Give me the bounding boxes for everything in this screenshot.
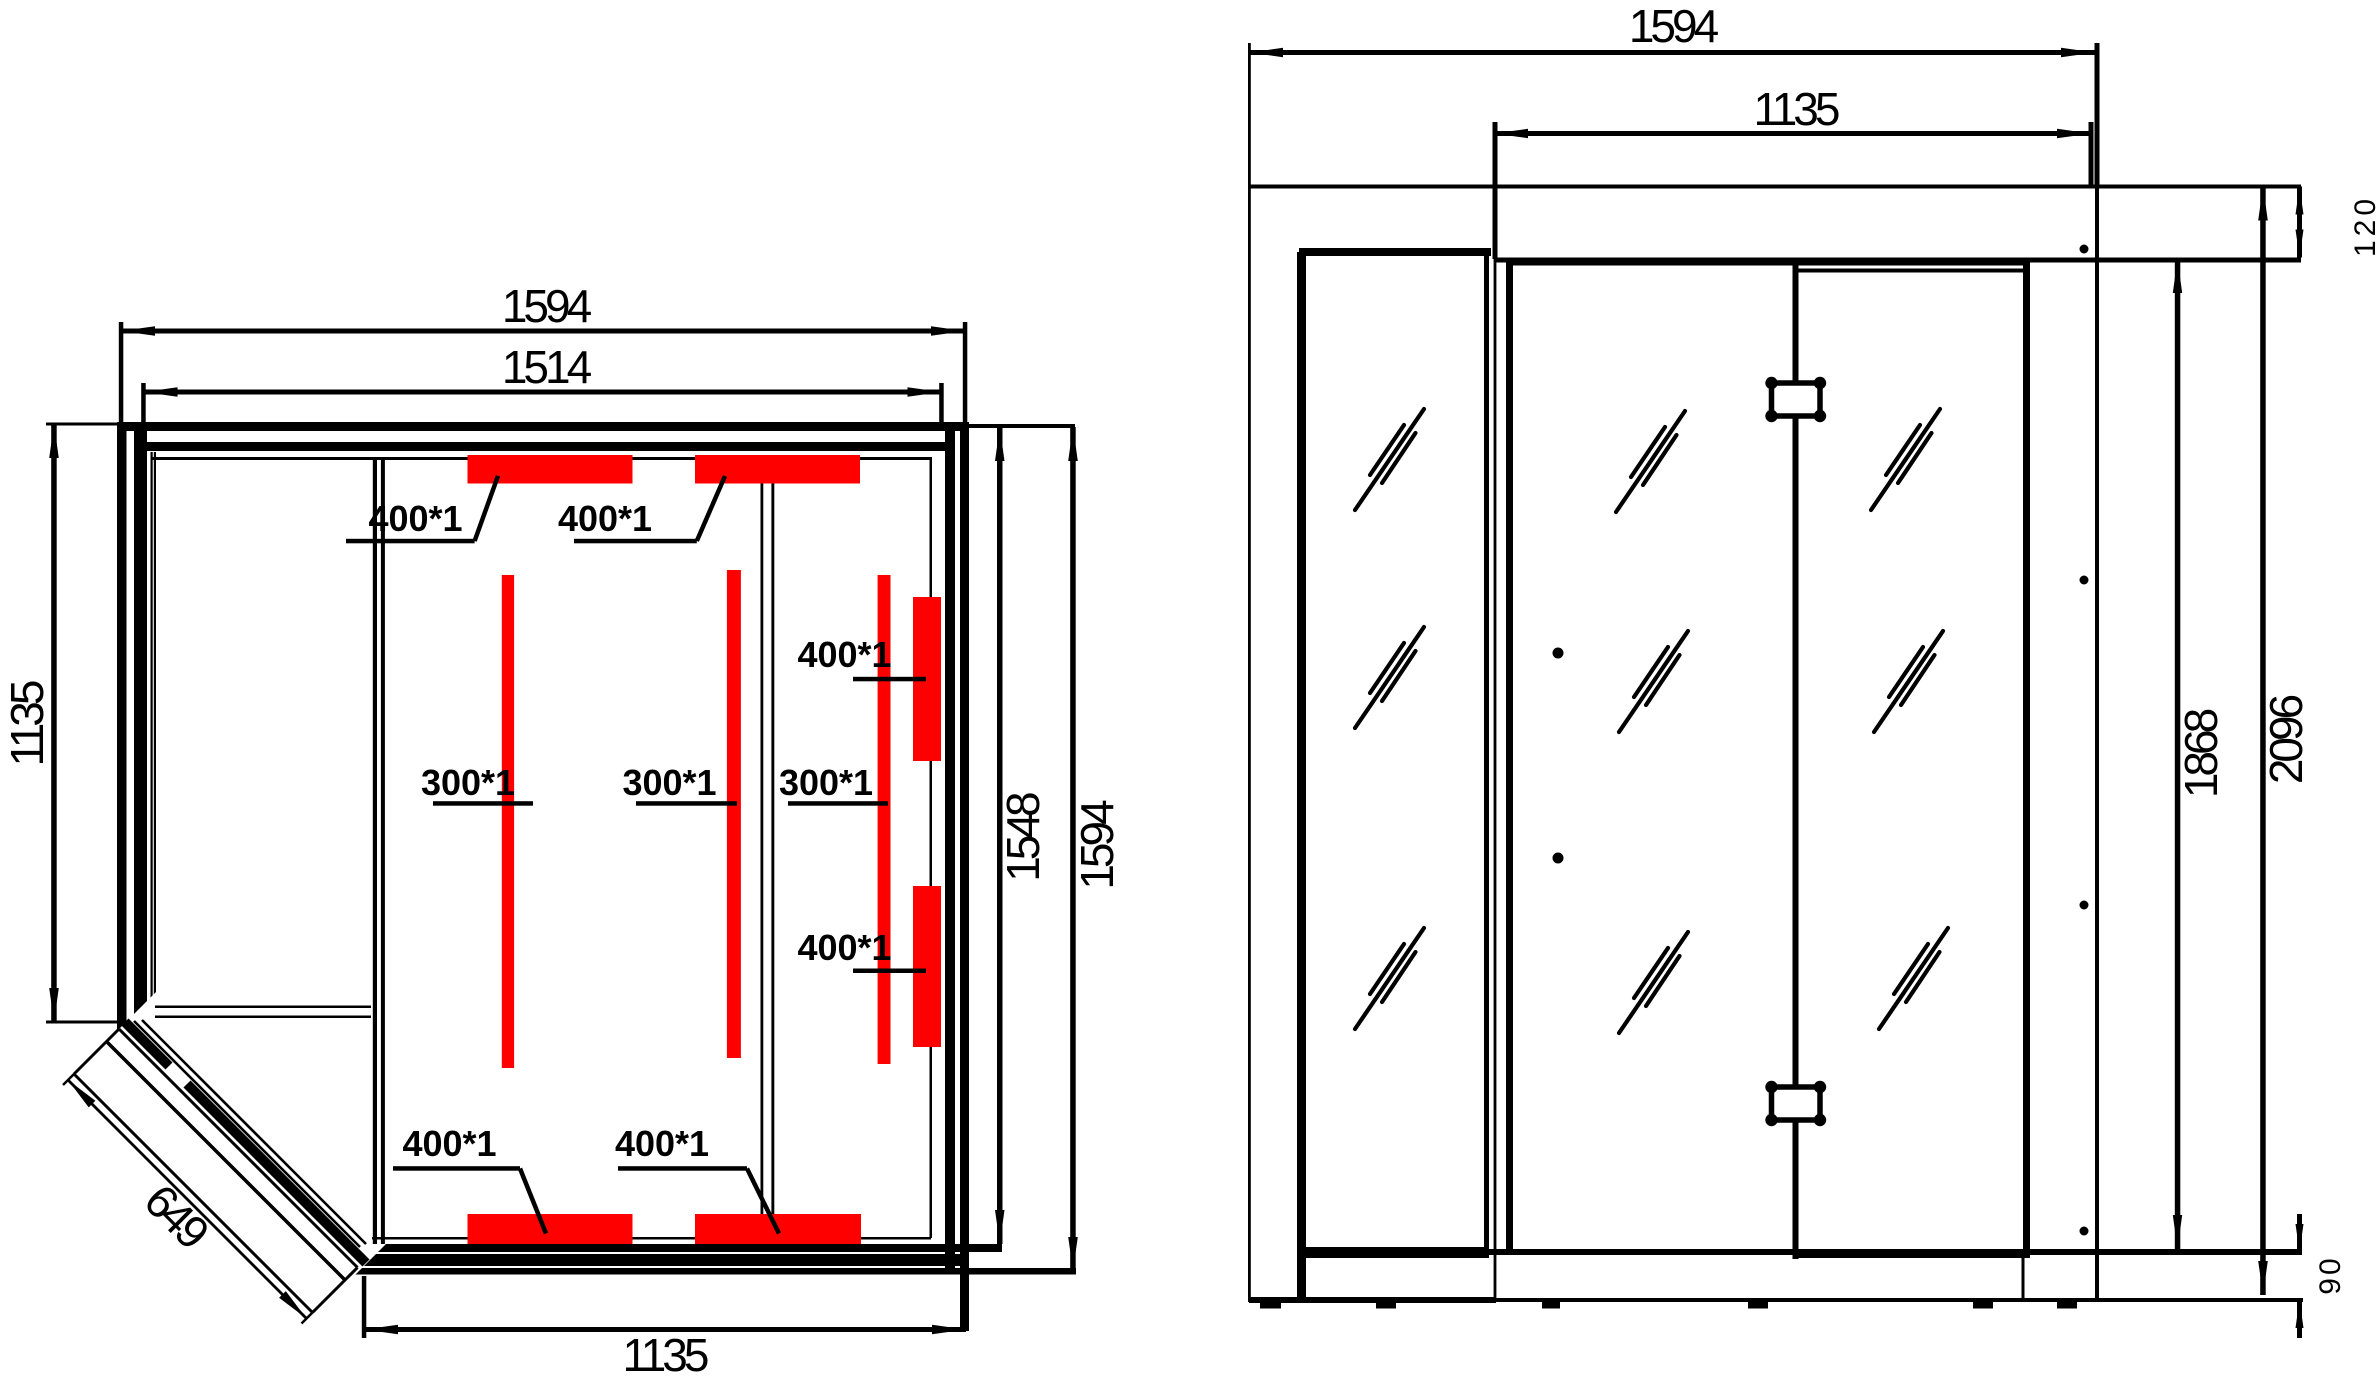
svg-text:1514: 1514 [502, 341, 592, 393]
svg-text:1548: 1548 [997, 793, 1049, 882]
svg-text:400*1: 400*1 [558, 498, 652, 539]
svg-text:1135: 1135 [623, 1329, 708, 1381]
svg-text:1594: 1594 [502, 280, 592, 332]
svg-text:90: 90 [2314, 1255, 2347, 1294]
svg-text:400*1: 400*1 [797, 634, 891, 675]
svg-text:1868: 1868 [2175, 709, 2227, 798]
svg-text:300*1: 300*1 [622, 762, 716, 803]
svg-text:400*1: 400*1 [368, 498, 462, 539]
svg-text:400*1: 400*1 [615, 1123, 709, 1164]
svg-text:300*1: 300*1 [779, 762, 873, 803]
svg-text:400*1: 400*1 [797, 927, 891, 968]
svg-text:1135: 1135 [1, 681, 53, 766]
svg-text:1594: 1594 [1629, 0, 1719, 52]
svg-text:400*1: 400*1 [402, 1123, 496, 1164]
svg-text:1135: 1135 [1754, 83, 1839, 135]
svg-text:2096: 2096 [2260, 695, 2312, 784]
svg-text:1594: 1594 [1071, 800, 1123, 890]
svg-text:300*1: 300*1 [421, 762, 515, 803]
svg-text:120: 120 [2349, 195, 2380, 257]
